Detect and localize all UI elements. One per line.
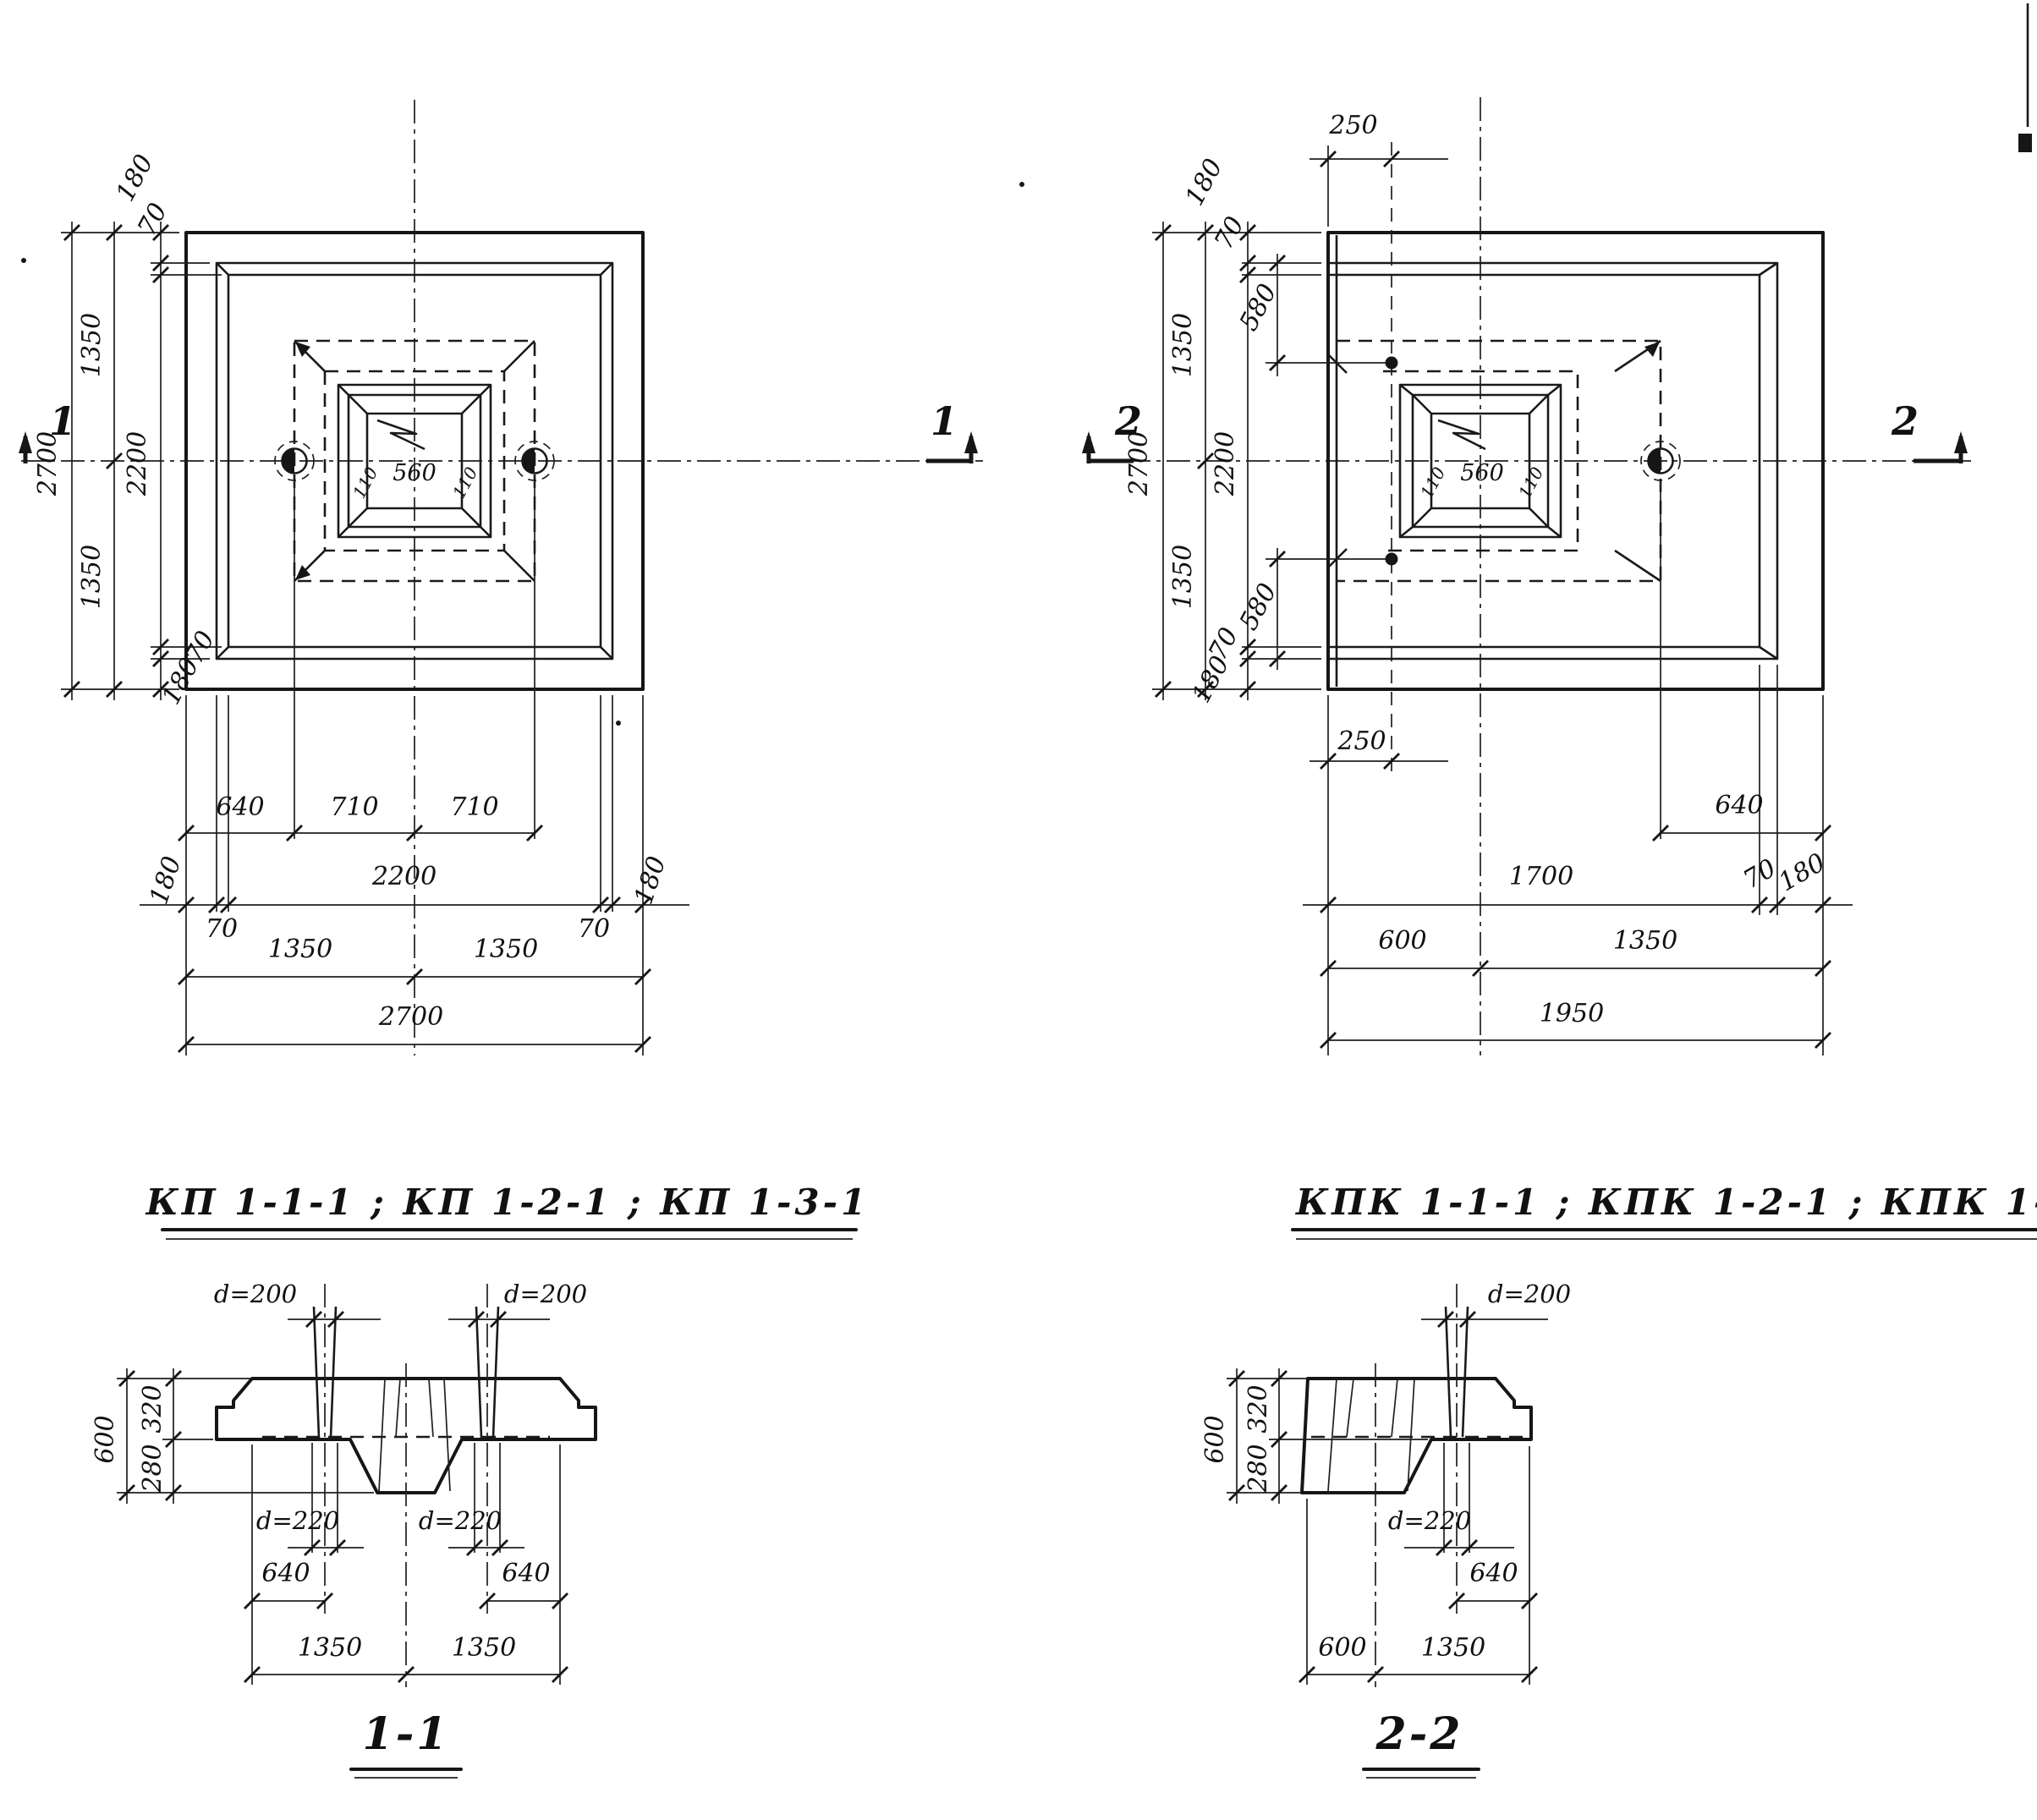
extension-lines-bottom <box>1328 480 1823 1055</box>
section-mark-1-right: 1 <box>926 398 978 463</box>
dowel-leaders <box>1266 254 1386 670</box>
dim-280: 280 <box>138 1444 167 1493</box>
dim-1350-upper: 1350 <box>1168 313 1198 377</box>
dim-640: 640 <box>1469 1559 1518 1588</box>
dim-2700: 2700 <box>378 1002 443 1032</box>
dim-600-depth: 600 <box>1200 1415 1230 1463</box>
dim-180-row: 180 <box>629 852 672 907</box>
dim-1350: 1350 <box>268 935 332 964</box>
socket-wall-lines <box>379 1379 450 1491</box>
dim-600: 600 <box>1378 926 1426 956</box>
dim-1350: 1350 <box>1613 926 1677 956</box>
plan-kp: 110 560 110 180 70 1350 2700 2200 1350 7… <box>21 100 983 1055</box>
dim-d200: d=200 <box>214 1280 297 1308</box>
dim-640: 640 <box>216 792 264 822</box>
dim-d220: d=220 <box>419 1506 502 1535</box>
dim-2200-left: 2200 <box>123 431 152 496</box>
dim-1350: 1350 <box>452 1633 516 1663</box>
dim-180-top: 180 <box>1180 154 1229 211</box>
title-right: КПК 1-1-1 ; КПК 1-2-1 ; КПК 1-3-1 <box>1293 1181 2037 1239</box>
socket-scribble <box>1438 420 1485 449</box>
section-mark-label: 1 <box>49 398 76 444</box>
drawing-sheet: 110 560 110 180 70 1350 2700 2200 1350 7… <box>0 0 2037 1820</box>
dim-70-row: 70 <box>206 914 238 944</box>
plan-kpk: 110 560 110 250 180 70 580 1350 2700 220… <box>1087 97 1971 1055</box>
dim-180-top: 180 <box>111 150 160 206</box>
dim-2200-row: 2200 <box>371 862 436 891</box>
dim-180-row: 180 <box>1774 847 1831 897</box>
dim-socket-wall: 110 <box>1416 463 1449 502</box>
section-mark-label: 2 <box>1114 398 1142 444</box>
corner-arrow-icon <box>1644 342 1660 357</box>
dim-socket-wall: 110 <box>349 463 382 502</box>
section-label-1-1: 1-1 <box>363 1708 450 1760</box>
scan-artifacts <box>21 3 2032 726</box>
dim-580-bottom: 580 <box>1234 578 1283 635</box>
dim-d220: d=220 <box>1388 1506 1471 1535</box>
dowel-dot-top <box>1386 357 1398 370</box>
dim-d220: d=220 <box>256 1506 339 1535</box>
profile-outline <box>1302 1379 1531 1493</box>
dim-socket-wall: 110 <box>448 463 481 502</box>
section-1-1: d=200 d=200 600 320 280 d=220 d=220 640 … <box>91 1280 596 1778</box>
dim-70-top: 70 <box>1209 211 1250 254</box>
dim-250-bottom: 250 <box>1337 726 1386 756</box>
dim-1350-lower: 1350 <box>77 545 107 609</box>
title-right-text: КПК 1-1-1 ; КПК 1-2-1 ; КПК 1-3-1 <box>1295 1181 2037 1223</box>
socket-scribble <box>377 420 425 449</box>
dim-1950: 1950 <box>1540 999 1604 1028</box>
dim-d200: d=200 <box>1488 1280 1571 1308</box>
dim-1350: 1350 <box>1421 1633 1485 1663</box>
dim-710: 710 <box>450 792 498 822</box>
dim-1700: 1700 <box>1509 862 1573 891</box>
section-2-2: d=200 600 320 280 d=220 640 600 1350 2-2 <box>1200 1280 1571 1778</box>
dim-1350: 1350 <box>298 1633 362 1663</box>
dim-640: 640 <box>261 1559 310 1588</box>
dim-socket-opening: 560 <box>393 460 436 486</box>
title-left: КП 1-1-1 ; КП 1-2-1 ; КП 1-3-1 <box>145 1181 870 1239</box>
dim-socket-opening: 560 <box>1460 460 1504 486</box>
dim-320: 320 <box>1244 1384 1273 1433</box>
dim-600: 600 <box>1318 1633 1366 1663</box>
dim-70-top: 70 <box>132 198 173 240</box>
dim-640: 640 <box>1715 791 1763 820</box>
dim-280: 280 <box>1244 1444 1273 1493</box>
dim-1350-upper: 1350 <box>77 313 107 377</box>
dim-70-row: 70 <box>578 914 610 944</box>
dim-1350: 1350 <box>474 935 538 964</box>
dim-600-depth: 600 <box>91 1415 120 1463</box>
dim-580-top: 580 <box>1234 279 1283 336</box>
dim-250-top: 250 <box>1328 111 1377 140</box>
section-mark-label: 1 <box>931 398 958 444</box>
section-label-2-2: 2-2 <box>1375 1708 1463 1760</box>
dim-640: 640 <box>502 1559 550 1588</box>
dim-socket-wall: 110 <box>1514 463 1547 502</box>
blueprint-canvas: 110 560 110 180 70 1350 2700 2200 1350 7… <box>0 0 2037 1820</box>
dim-d200: d=200 <box>504 1280 587 1308</box>
section-mark-label: 2 <box>1891 398 1919 444</box>
dowel-dot-bottom <box>1386 553 1398 566</box>
dim-1350-lower: 1350 <box>1168 545 1198 609</box>
dim-2200-left: 2200 <box>1211 431 1240 496</box>
socket-wall-lines <box>1328 1379 1414 1491</box>
dim-320: 320 <box>138 1384 167 1433</box>
dim-710: 710 <box>330 792 378 822</box>
dim-180-row: 180 <box>144 852 187 907</box>
title-left-text: КП 1-1-1 ; КП 1-2-1 ; КП 1-3-1 <box>145 1181 870 1223</box>
section-mark-2-right: 2 <box>1891 398 1968 463</box>
